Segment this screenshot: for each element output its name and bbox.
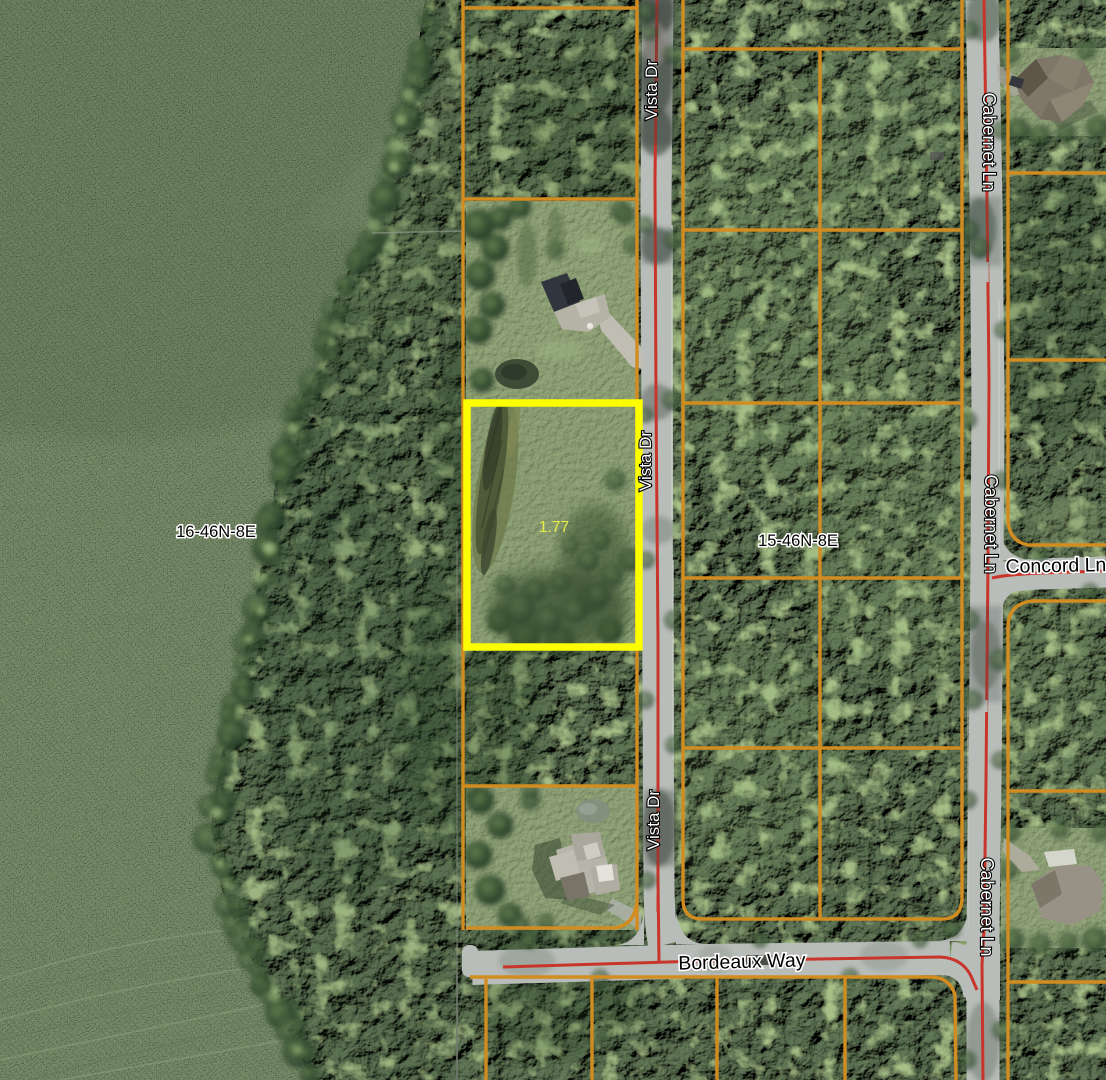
svg-text:Vista Dr: Vista Dr: [644, 790, 663, 850]
svg-text:Cabernet Ln: Cabernet Ln: [981, 474, 1001, 573]
svg-text:16-46N-8E: 16-46N-8E: [176, 523, 256, 541]
svg-text:Cabernet Ln: Cabernet Ln: [979, 92, 999, 191]
svg-text:Vista Dr: Vista Dr: [636, 431, 655, 491]
svg-text:1.77: 1.77: [539, 519, 569, 536]
svg-text:15-46N-8E: 15-46N-8E: [758, 532, 838, 550]
svg-text:Bordeaux Way: Bordeaux Way: [678, 949, 806, 974]
svg-text:Concord Ln: Concord Ln: [1005, 554, 1106, 578]
svg-text:Vista Dr: Vista Dr: [642, 60, 661, 120]
svg-text:Cabernet Ln: Cabernet Ln: [977, 857, 997, 956]
